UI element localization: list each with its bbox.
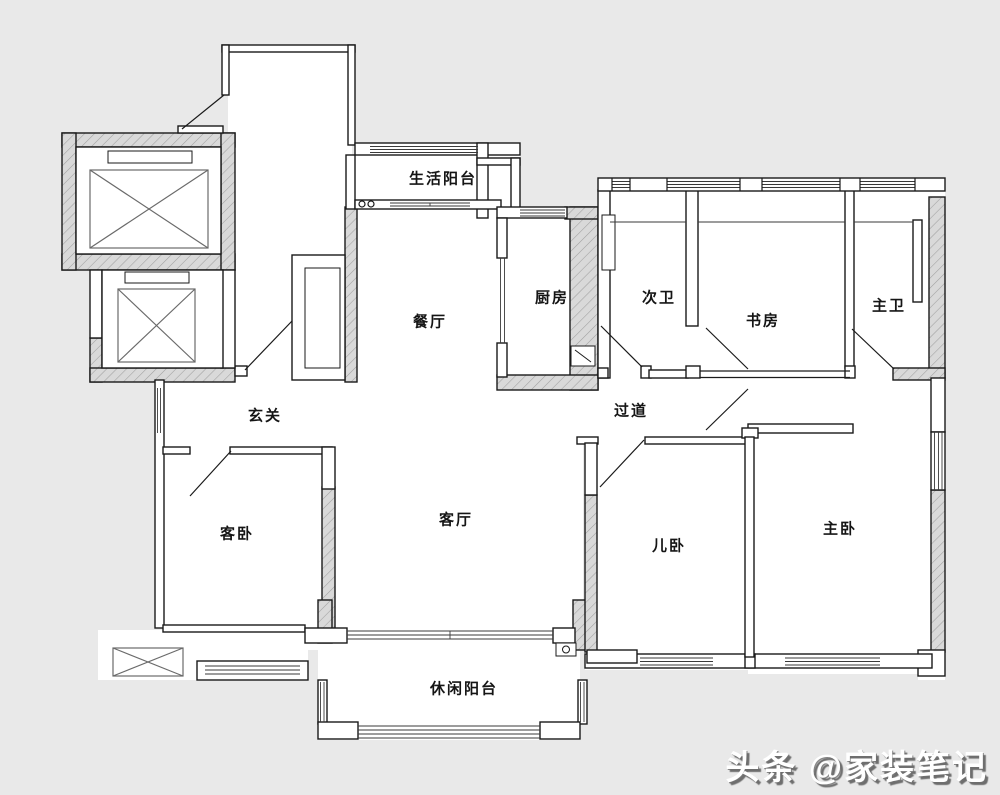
elevator-2-icon [118,289,195,362]
kitchen-sink-icon [571,346,595,366]
flue-shaft-icon [113,648,183,676]
floor-plan-drawing [0,0,1000,795]
elevator-1-icon [90,170,208,248]
door-stop-icon [556,643,576,656]
floor-plan: 生活阳台 厨房 次卫 书房 主卫 餐厅 玄关 过道 客卧 客厅 儿卧 主卧 休闲… [0,0,1000,795]
